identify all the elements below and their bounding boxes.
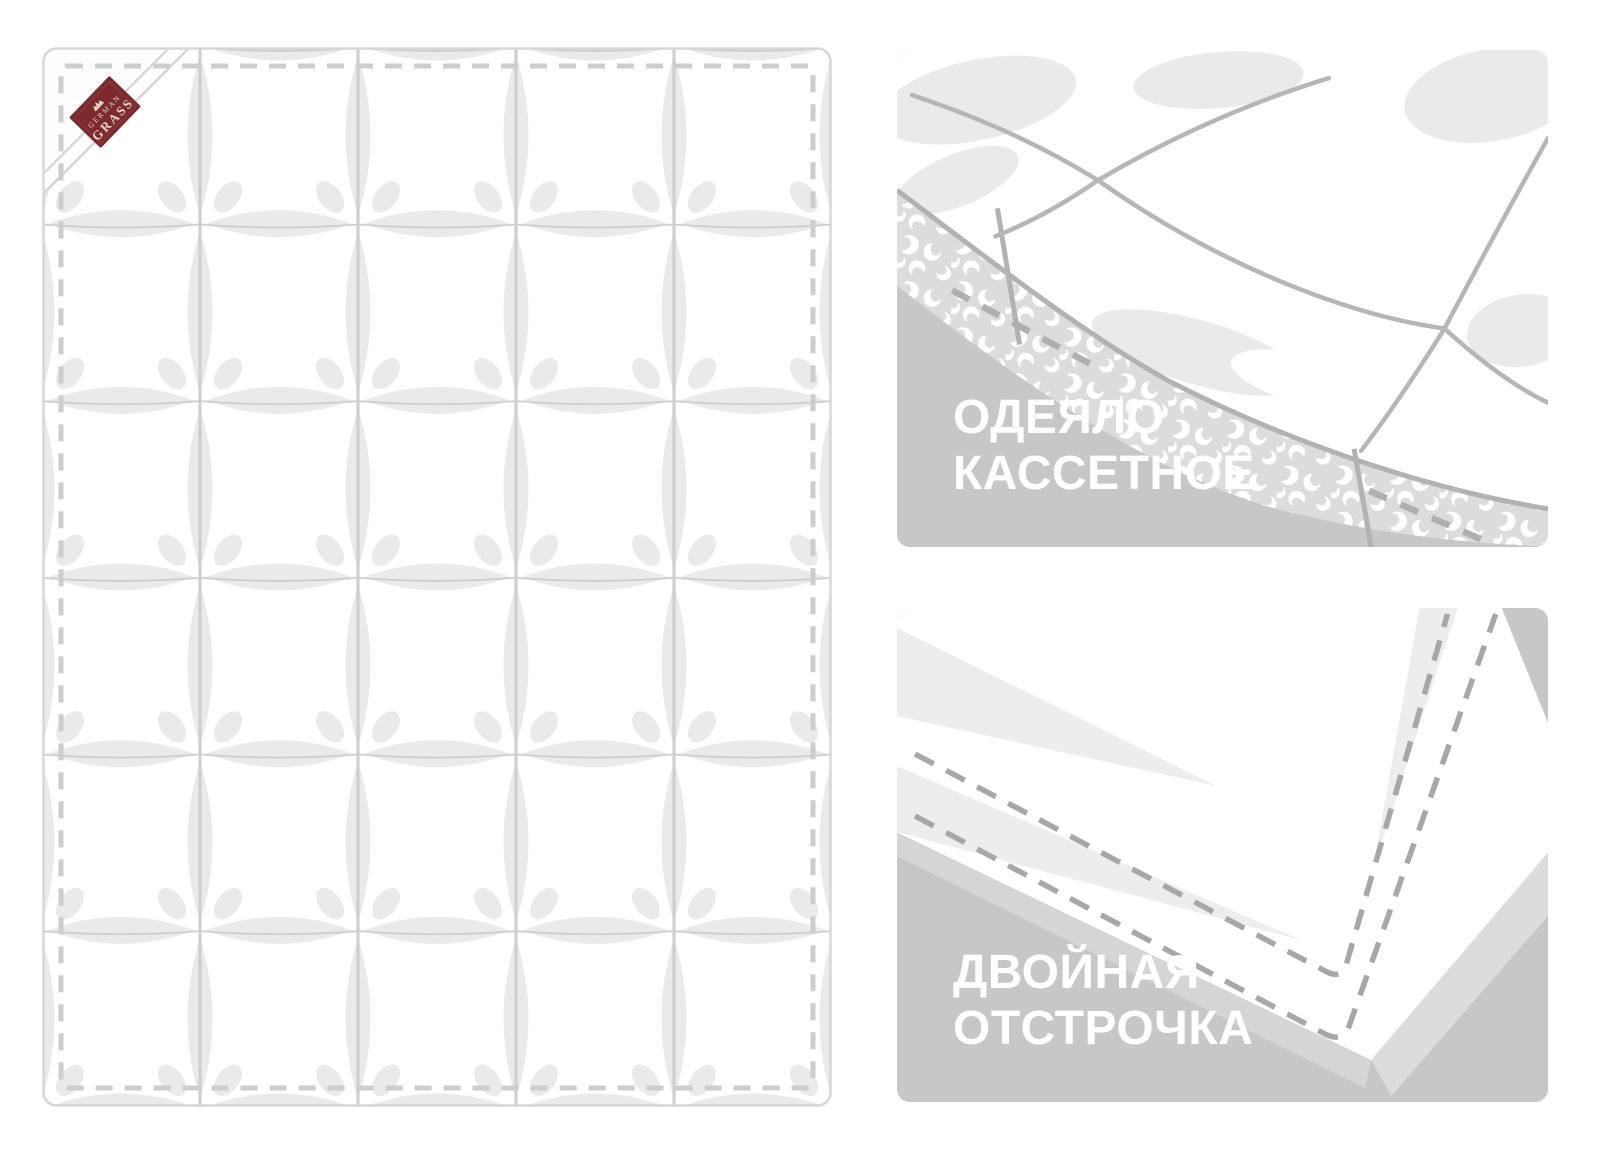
- panel-cassette-title-line1: ОДЕЯЛО: [953, 390, 1255, 447]
- panel-stitching-title-line2: ОТСТРОЧКА: [953, 1001, 1253, 1058]
- quilt-illustration: GERMAN GRASS: [42, 47, 832, 1107]
- panel-cassette-quilt: ОДЕЯЛО КАССЕТНОЕ: [897, 50, 1548, 547]
- quilt-cells-grid: [42, 47, 832, 1107]
- panel-cassette-title-line2: КАССЕТНОЕ: [953, 446, 1255, 503]
- panel-stitching-title: ДВОЙНАЯ ОТСТРОЧКА: [953, 945, 1253, 1058]
- product-illustration-stage: GERMAN GRASS: [0, 0, 1600, 1154]
- panel-cassette-title: ОДЕЯЛО КАССЕТНОЕ: [953, 390, 1255, 503]
- panel-double-stitching: ДВОЙНАЯ ОТСТРОЧКА: [897, 608, 1548, 1102]
- panel-stitching-title-line1: ДВОЙНАЯ: [953, 945, 1253, 1002]
